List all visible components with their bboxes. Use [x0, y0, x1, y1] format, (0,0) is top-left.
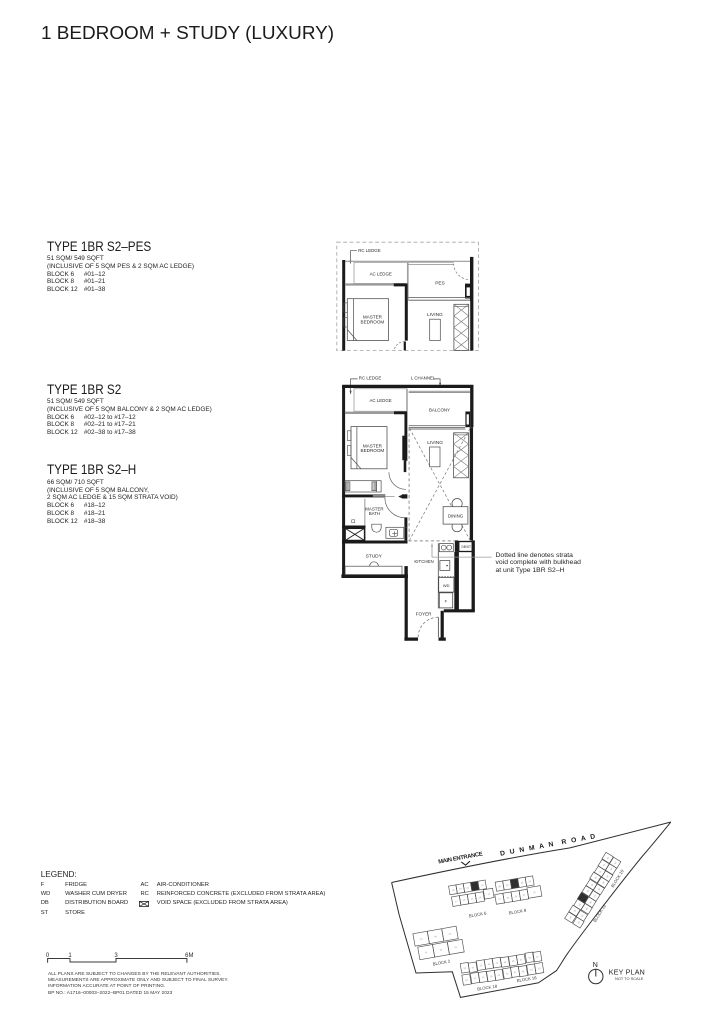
svg-text:D U N M A N R O A D: D U N M A N R O A D: [500, 833, 598, 858]
svg-text:RC LEDGE: RC LEDGE: [359, 376, 382, 381]
svg-text:19: 19: [459, 888, 463, 891]
svg-text:42: 42: [570, 916, 573, 920]
svg-text:28: 28: [498, 886, 502, 889]
svg-text:STUDY: STUDY: [366, 554, 383, 560]
svg-text:66: 66: [504, 962, 507, 964]
svg-text:65: 65: [506, 973, 509, 975]
svg-text:N: N: [593, 960, 598, 969]
svg-text:01: 01: [425, 952, 429, 955]
svg-text:KITCHEN: KITCHEN: [414, 559, 433, 564]
svg-text:18: 18: [463, 899, 467, 902]
svg-text:05: 05: [455, 947, 459, 950]
svg-text:13: 13: [481, 885, 485, 888]
svg-text:30: 30: [574, 909, 577, 913]
svg-text:06: 06: [434, 936, 438, 939]
svg-text:BLOCK 2: BLOCK 2: [432, 958, 451, 966]
svg-text:31: 31: [579, 903, 582, 907]
svg-text:15: 15: [479, 897, 483, 900]
svg-text:PES: PES: [435, 280, 445, 286]
svg-text:NOT TO SCALE: NOT TO SCALE: [615, 976, 644, 981]
svg-text:04: 04: [440, 949, 444, 952]
svg-text:27: 27: [498, 899, 502, 902]
svg-text:BATH: BATH: [369, 511, 380, 516]
svg-text:39: 39: [578, 921, 581, 925]
svg-text:38: 38: [591, 883, 594, 887]
svg-text:38: 38: [587, 889, 590, 893]
svg-text:49: 49: [498, 975, 501, 977]
svg-text:26: 26: [507, 897, 511, 900]
svg-text:37: 37: [520, 959, 523, 961]
svg-text:LIVING: LIVING: [427, 440, 443, 446]
svg-text:WD: WD: [443, 583, 450, 588]
svg-text:42: 42: [603, 863, 606, 867]
svg-text:66: 66: [512, 961, 515, 963]
svg-text:53: 53: [482, 977, 485, 979]
svg-text:F: F: [445, 598, 448, 603]
svg-text:BALCONY: BALCONY: [429, 407, 450, 412]
svg-text:BLOCK 12: BLOCK 12: [592, 903, 607, 923]
svg-text:39: 39: [472, 967, 475, 969]
svg-text:44: 44: [590, 901, 593, 905]
svg-text:45: 45: [607, 856, 610, 860]
svg-text:38: 38: [598, 888, 601, 892]
svg-text:RC LEDGE: RC LEDGE: [358, 248, 381, 253]
svg-text:40: 40: [615, 861, 618, 865]
svg-text:BLOCK 18: BLOCK 18: [477, 983, 498, 991]
svg-text:BLOCK 8: BLOCK 8: [508, 908, 527, 916]
svg-text:54: 54: [474, 978, 477, 980]
svg-text:41: 41: [599, 870, 602, 874]
svg-text:BEDROOM: BEDROOM: [361, 448, 385, 453]
svg-text:15: 15: [471, 898, 475, 901]
svg-text:40: 40: [603, 881, 606, 885]
svg-text:BEDROOM: BEDROOM: [361, 320, 385, 325]
svg-text:49: 49: [496, 962, 499, 964]
svg-text:55: 55: [538, 968, 541, 970]
svg-text:39: 39: [595, 876, 598, 880]
svg-text:FOYER: FOYER: [416, 611, 433, 616]
svg-text:44: 44: [610, 868, 613, 872]
svg-text:24: 24: [533, 892, 537, 895]
svg-text:DB/ST: DB/ST: [462, 545, 471, 549]
svg-text:25: 25: [515, 896, 519, 899]
svg-text:32: 32: [607, 875, 610, 879]
svg-text:05: 05: [449, 933, 453, 936]
svg-text:16: 16: [452, 890, 456, 893]
svg-text:55: 55: [490, 976, 493, 978]
svg-text:25: 25: [523, 894, 527, 897]
svg-text:56: 56: [464, 968, 467, 970]
svg-text:DINING: DINING: [448, 513, 464, 518]
svg-text:22: 22: [521, 882, 525, 885]
svg-text:31: 31: [594, 894, 597, 898]
svg-text:61: 61: [514, 972, 517, 974]
svg-text:21: 21: [466, 887, 470, 890]
svg-text:AC LEDGE: AC LEDGE: [369, 398, 391, 403]
svg-text:LIVING: LIVING: [427, 312, 443, 318]
svg-text:49: 49: [488, 964, 491, 966]
svg-text:AC LEDGE: AC LEDGE: [370, 272, 392, 277]
svg-text:17: 17: [455, 901, 459, 904]
svg-text:52: 52: [480, 965, 483, 967]
svg-text:63: 63: [529, 957, 532, 959]
svg-text:23: 23: [528, 881, 532, 884]
svg-text:62: 62: [465, 979, 468, 981]
svg-text:39: 39: [581, 914, 584, 918]
svg-text:03: 03: [420, 938, 424, 941]
svg-text:BLOCK 6: BLOCK 6: [468, 910, 487, 918]
svg-text:64: 64: [530, 969, 533, 971]
svg-text:MAIN ENTRANCE: MAIN ENTRANCE: [438, 851, 483, 865]
svg-text:L CHANNEL: L CHANNEL: [411, 376, 436, 381]
svg-text:53: 53: [536, 956, 539, 958]
svg-text:38: 38: [522, 971, 525, 973]
svg-text:43: 43: [586, 907, 589, 911]
svg-text:29: 29: [506, 885, 510, 888]
svg-text:14: 14: [488, 893, 492, 896]
